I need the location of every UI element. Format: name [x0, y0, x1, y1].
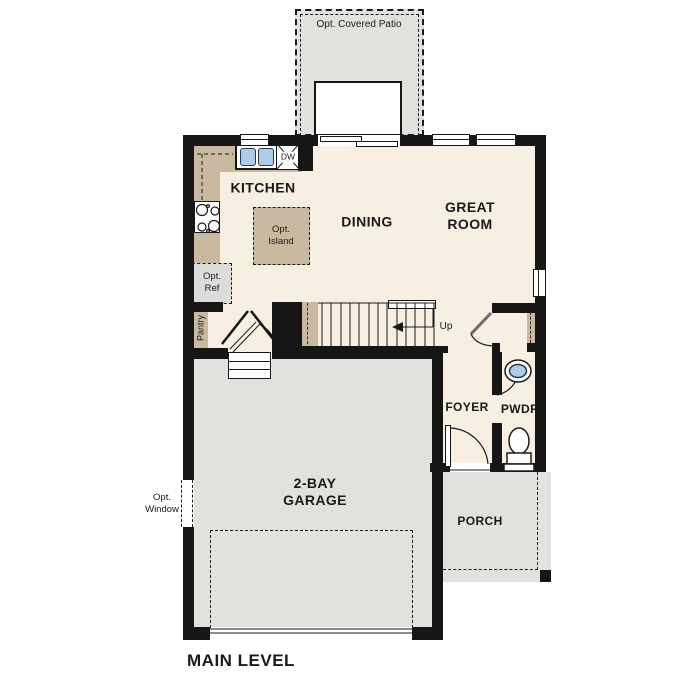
porch-label: PORCH [457, 514, 502, 528]
dining-label: DINING [341, 214, 392, 231]
patio-label: Opt. Covered Patio [316, 19, 401, 32]
island-label: Opt. Island [268, 224, 293, 248]
kitchen-counter-dash [197, 154, 233, 200]
foyer-label: FOYER [445, 400, 488, 414]
stairs [318, 303, 436, 346]
pantry-label: Pantry [193, 307, 208, 348]
coat-closet-door [471, 313, 493, 346]
page-title: MAIN LEVEL [187, 651, 295, 671]
front-door-swing [451, 428, 488, 464]
garage-entry-door-swing [259, 324, 277, 347]
dishwasher-label: DW [280, 152, 296, 163]
refrigerator-label: Opt. Ref [203, 271, 221, 295]
powder-label: PWDR [501, 402, 539, 416]
powder-sink [505, 360, 531, 382]
plan-linework [0, 0, 687, 687]
great-room-label: GREAT ROOM [445, 199, 495, 233]
optional-window-label: Opt. Window [145, 492, 179, 516]
garage-label: 2-BAY GARAGE [283, 475, 347, 509]
toilet [504, 428, 534, 471]
hall-doors [222, 311, 277, 352]
up-label: Up [440, 321, 453, 334]
garage-door-lines [210, 629, 412, 633]
range-burners [197, 205, 220, 233]
floor-plan: Opt. Covered Patio KITCHEN DINING GREAT … [0, 0, 687, 687]
up-arrow [402, 309, 433, 327]
kitchen-label: KITCHEN [230, 180, 295, 197]
